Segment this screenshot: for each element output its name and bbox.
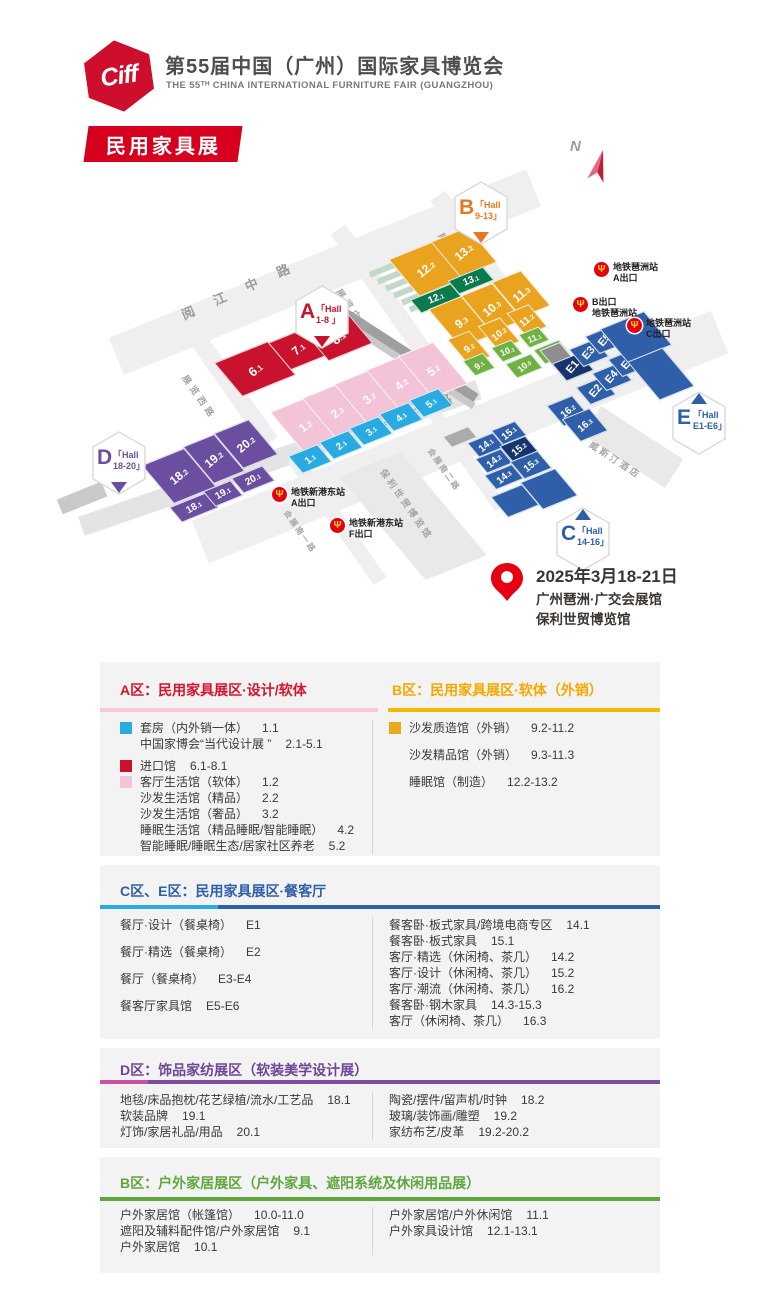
section-columns: 地毯/床品抱枕/花艺绿植/流水/工艺品18.1软装品牌19.1灯饰/家居礼品/用…: [100, 1092, 660, 1140]
legend-column: 户外家居馆/户外休闲馆11.1户外家具设计馆12.1-13.1: [372, 1207, 660, 1255]
legend-row: 客厅·潮流（休闲椅、茶几）16.2: [389, 981, 660, 997]
metro-logo-icon: Ψ: [573, 297, 588, 312]
legend-hall-number: E1: [246, 917, 261, 933]
legend-row: 沙发精品馆（外销）9.3-11.3: [389, 747, 660, 763]
page: Ciff 第55届中国（广州）国际家具博览会 THE 55ᵀᴴ CHINA IN…: [0, 0, 760, 1291]
legend-hall-number: 6.1-8.1: [190, 758, 227, 774]
legend-label: 客厅生活馆（软体）: [140, 774, 248, 790]
legend-row: 沙发质造馆（外销）9.2-11.2: [389, 720, 660, 736]
legend-row: 地毯/床品抱枕/花艺绿植/流水/工艺品18.1: [120, 1092, 372, 1108]
legend-hall-number: 14.3-15.3: [491, 997, 542, 1013]
north-label: N: [570, 138, 581, 155]
legend-label: 沙发生活馆（精品）: [140, 790, 248, 806]
hall-label: 15.3: [521, 456, 541, 475]
legend-hall-number: 15.1: [491, 933, 514, 949]
hall-label: 19.2: [202, 447, 226, 470]
hall-badge-A: A「Hall1-8 」: [293, 284, 351, 350]
metro-logo-icon: Ψ: [594, 262, 609, 277]
legend-hall-number: 12.2-13.2: [507, 774, 558, 790]
legend-label: 户外家居馆（帐篷馆）: [120, 1207, 240, 1223]
legend-hall-number: 3.2: [262, 806, 279, 822]
legend-row: 户外家居馆10.1: [120, 1239, 372, 1255]
legend-label: 沙发质造馆（外销）: [409, 720, 517, 736]
legend-hall-number: 18.1: [327, 1092, 350, 1108]
legend-column: 户外家居馆（帐篷馆）10.0-11.0遮阳及辅料配件馆/户外家居馆9.1户外家居…: [100, 1207, 372, 1255]
metro-exit-label: 地铁新港东站A出口: [291, 487, 345, 510]
legend-row: 户外家居馆（帐篷馆）10.0-11.0: [120, 1207, 372, 1223]
hall-label: 11.2: [517, 311, 536, 330]
hall-badge-letter: A: [300, 300, 315, 324]
venue-text: 2025年3月18-21日 广州琶洲·广交会展馆 保利世贸博览馆: [536, 562, 678, 631]
hall-badge-range: 「Hall14-16」: [577, 526, 609, 548]
legend-hall-number: 10.1: [194, 1239, 217, 1255]
legend-label: 户外家居馆: [120, 1239, 180, 1255]
legend-hall-number: 14.1: [566, 917, 589, 933]
legend-row: 餐厅（餐桌椅）E3-E4: [120, 971, 372, 987]
legend-row: 沙发生活馆（奢品）3.2: [120, 806, 372, 822]
legend-hall-number: 20.1: [237, 1124, 260, 1140]
hall-badge-E: E「HallE1-E6」: [670, 390, 728, 456]
legend-label: 玻璃/装饰画/雕塑: [389, 1108, 480, 1124]
legend-row: 套房（内外销一体）1.1: [120, 720, 372, 736]
legend-label: 餐客卧·钢木家具: [389, 997, 477, 1013]
legend-column: 陶瓷/摆件/留声机/时钟18.2玻璃/装饰画/雕塑19.2家纺布艺/皮革19.2…: [372, 1092, 660, 1140]
legend-sections: A区：民用家具展区·设计/软体B区：民用家具展区·软体（外销）套房（内外销一体）…: [100, 662, 660, 1282]
legend-row: 睡眠馆（制造）12.2-13.2: [389, 774, 660, 790]
north-arrow-icon: [580, 143, 619, 189]
hall-label: 10.0: [515, 357, 533, 374]
legend-hall-number: 9.1: [293, 1223, 310, 1239]
hall-label: 18.2: [167, 464, 191, 487]
legend-swatch: [120, 760, 132, 772]
hall-label: 5.1: [423, 395, 438, 410]
hall-badge-letter: C: [561, 522, 576, 546]
legend-hall-number: 2.2: [262, 790, 279, 806]
legend-row: 陶瓷/摆件/留声机/时钟18.2: [389, 1092, 660, 1108]
legend-label: 沙发生活馆（奢品）: [140, 806, 248, 822]
section-underline: [218, 905, 660, 909]
legend-column: 地毯/床品抱枕/花艺绿植/流水/工艺品18.1软装品牌19.1灯饰/家居礼品/用…: [100, 1092, 372, 1140]
metro-logo-icon: Ψ: [627, 318, 642, 333]
legend-label: 餐客卧·板式家具/跨境电商专区: [389, 917, 552, 933]
hall-label: 10.1: [498, 344, 515, 359]
legend-row: 客厅·精选（休闲椅、茶几）14.2: [389, 949, 660, 965]
legend-row: 遮阳及辅料配件馆/户外家居馆9.1: [120, 1223, 372, 1239]
legend-label: 客厅·精选（休闲椅、茶几）: [389, 949, 537, 965]
legend-panel-4: B区：户外家居展区（户外家具、遮阳系统及休闲用品展）户外家居馆（帐篷馆）10.0…: [100, 1157, 660, 1273]
legend-row: 智能睡眠/睡眠生态/居家社区养老5.2: [120, 838, 372, 854]
section-title: A区：民用家具展区·设计/软体: [120, 680, 307, 700]
legend-label: 餐客厅家具馆: [120, 998, 192, 1014]
legend-label: 客厅·设计（休闲椅、茶几）: [389, 965, 537, 981]
legend-hall-number: 19.2-20.2: [478, 1124, 529, 1140]
hall-label: 1.1: [302, 451, 317, 466]
legend-label: 客厅（休闲椅、茶几）: [389, 1013, 509, 1029]
hall-label: 1.2: [296, 416, 315, 435]
hall-label: 3.1: [363, 423, 378, 438]
legend-row: 餐客卧·板式家具/跨境电商专区14.1: [389, 917, 660, 933]
hall-badge-range: 「Hall18-20」: [113, 450, 145, 472]
legend-label: 遮阳及辅料配件馆/户外家居馆: [120, 1223, 279, 1239]
legend-hall-number: E2: [246, 944, 261, 960]
location-pin-icon: [490, 562, 524, 602]
legend-hall-number: 12.1-13.1: [487, 1223, 538, 1239]
legend-hall-number: E3-E4: [218, 971, 251, 987]
hall-label: 12.2: [414, 257, 438, 280]
hall-label: 11.1: [526, 330, 543, 345]
legend-label: 睡眠馆（制造）: [409, 774, 493, 790]
metro-exit: Ψ地铁琶洲站C出口: [627, 318, 691, 341]
venue-address-1: 广州琶洲·广交会展馆: [536, 590, 678, 610]
metro-exit-label: 地铁新港东站F出口: [349, 518, 403, 541]
legend-label: 餐厅·精选（餐桌椅）: [120, 944, 232, 960]
legend-hall-number: 1.1: [262, 720, 279, 736]
hall-badge-B: B「Hall9-13」: [452, 180, 510, 246]
legend-row: 户外家居馆/户外休闲馆11.1: [389, 1207, 660, 1223]
legend-panel-3: D区：饰品家纺展区（软装美学设计展）地毯/床品抱枕/花艺绿植/流水/工艺品18.…: [100, 1048, 660, 1148]
legend-label: 中国家博会“当代设计展 ”: [140, 736, 271, 752]
legend-label: 家纺布艺/皮革: [389, 1124, 464, 1140]
legend-row: 餐厅·设计（餐桌椅）E1: [120, 917, 372, 933]
venue-info: 2025年3月18-21日 广州琶洲·广交会展馆 保利世贸博览馆: [490, 562, 678, 631]
legend-row: 沙发生活馆（精品）2.2: [120, 790, 372, 806]
hall-label: 20.1: [243, 471, 263, 489]
section-title: B区：户外家居展区（户外家具、遮阳系统及休闲用品展）: [120, 1173, 480, 1193]
legend-hall-number: 10.0-11.0: [254, 1207, 304, 1223]
venue-map: N 2025年3月18-21日 广州琶洲·广交会展馆 保利世贸博览馆 阅 江 中…: [0, 0, 760, 660]
hall-label: 14.3: [494, 468, 514, 487]
section-title: D区：饰品家纺展区（软装美学设计展）: [120, 1060, 368, 1080]
legend-row: 玻璃/装饰画/雕塑19.2: [389, 1108, 660, 1124]
metro-exit: Ψ地铁新港东站F出口: [330, 518, 403, 541]
legend-row: 餐厅·精选（餐桌椅）E2: [120, 944, 372, 960]
legend-label: 户外家具设计馆: [389, 1223, 473, 1239]
section-columns: 餐厅·设计（餐桌椅）E1餐厅·精选（餐桌椅）E2餐厅（餐桌椅）E3-E4餐客厅家…: [100, 917, 660, 1029]
hall-label: 4.2: [392, 374, 411, 393]
metro-exit-label: 地铁琶洲站C出口: [646, 318, 691, 341]
legend-row: 灯饰/家居礼品/用品20.1: [120, 1124, 372, 1140]
legend-label: 智能睡眠/睡眠生态/居家社区养老: [140, 838, 315, 854]
metro-exit-label: 地铁琶洲站A出口: [613, 262, 658, 285]
legend-swatch: [120, 722, 132, 734]
legend-column: 套房（内外销一体）1.1中国家博会“当代设计展 ”2.1-5.1进口馆6.1-8…: [100, 720, 372, 854]
metro-logo-icon: Ψ: [330, 518, 345, 533]
legend-hall-number: E5-E6: [206, 998, 239, 1014]
section-underline: [100, 1197, 660, 1201]
legend-label: 睡眠生活馆（精品睡眠/智能睡眠）: [140, 822, 323, 838]
section-columns: 户外家居馆（帐篷馆）10.0-11.0遮阳及辅料配件馆/户外家居馆9.1户外家居…: [100, 1207, 660, 1255]
hall-label: 6.1: [245, 359, 265, 379]
legend-label: 软装品牌: [120, 1108, 168, 1124]
hall-label: 10.3: [480, 296, 504, 319]
legend-label: 地毯/床品抱枕/花艺绿植/流水/工艺品: [120, 1092, 313, 1108]
legend-hall-number: 16.3: [523, 1013, 546, 1029]
legend-row: 客厅·设计（休闲椅、茶几）15.2: [389, 965, 660, 981]
hall-badge-range: 「Hall1-8 」: [316, 304, 342, 326]
legend-row: 餐客卧·板式家具15.1: [389, 933, 660, 949]
legend-label: 餐厅·设计（餐桌椅）: [120, 917, 232, 933]
legend-panel-1: A区：民用家具展区·设计/软体B区：民用家具展区·软体（外销）套房（内外销一体）…: [100, 662, 660, 856]
legend-swatch: [120, 776, 132, 788]
legend-hall-number: 1.2: [262, 774, 279, 790]
metro-exit: Ψ地铁琶洲站A出口: [594, 262, 658, 285]
legend-label: 餐厅（餐桌椅）: [120, 971, 204, 987]
legend-row: 户外家具设计馆12.1-13.1: [389, 1223, 660, 1239]
venue-date: 2025年3月18-21日: [536, 562, 678, 587]
hall-badge-D: D「Hall18-20」: [90, 430, 148, 496]
legend-column: 沙发质造馆（外销）9.2-11.2沙发精品馆（外销）9.3-11.3睡眠馆（制造…: [372, 720, 660, 854]
legend-hall-number: 9.2-11.2: [531, 720, 574, 736]
section-underline: [388, 708, 660, 712]
hall-label: 2.2: [328, 402, 347, 421]
legend-label: 户外家居馆/户外休闲馆: [389, 1207, 512, 1223]
legend-hall-number: 15.2: [551, 965, 574, 981]
metro-exit-label: B出口地铁琶洲站: [592, 297, 637, 320]
legend-label: 灯饰/家居礼品/用品: [120, 1124, 223, 1140]
hall-label: 16.3: [575, 416, 595, 435]
legend-hall-number: 4.2: [337, 822, 354, 838]
legend-hall-number: 18.2: [521, 1092, 544, 1108]
hall-label: 13.1: [461, 272, 480, 288]
metro-logo-icon: Ψ: [272, 487, 287, 502]
road-label: 展览西路: [179, 372, 219, 422]
hall-label: 20.2: [234, 432, 258, 455]
legend-hall-number: 19.2: [494, 1108, 517, 1124]
hall-badge-letter: E: [677, 406, 691, 430]
hall-badge-letter: D: [97, 446, 112, 470]
legend-panel-2: C区、E区：民用家具展区·餐客厅餐厅·设计（餐桌椅）E1餐厅·精选（餐桌椅）E2…: [100, 865, 660, 1039]
legend-swatch: [389, 722, 401, 734]
hall-badge-letter: B: [459, 196, 474, 220]
hall-label: 5.2: [424, 360, 443, 379]
legend-row: 软装品牌19.1: [120, 1108, 372, 1124]
legend-row: 客厅生活馆（软体）1.2: [120, 774, 372, 790]
hall-label: 11.3: [509, 283, 532, 306]
hall-badge-range: 「Hall9-13」: [475, 200, 502, 222]
legend-column: 餐客卧·板式家具/跨境电商专区14.1餐客卧·板式家具15.1客厅·精选（休闲椅…: [372, 917, 660, 1029]
legend-label: 沙发精品馆（外销）: [409, 747, 517, 763]
legend-label: 进口馆: [140, 758, 176, 774]
legend-hall-number: 2.1-5.1: [285, 736, 322, 752]
legend-label: 陶瓷/摆件/留声机/时钟: [389, 1092, 507, 1108]
hall-label: 9.1: [472, 358, 486, 372]
section-underline: [148, 1080, 660, 1084]
legend-label: 套房（内外销一体）: [140, 720, 248, 736]
legend-row: 客厅（休闲椅、茶几）16.3: [389, 1013, 660, 1029]
legend-column: 餐厅·设计（餐桌椅）E1餐厅·精选（餐桌椅）E2餐厅（餐桌椅）E3-E4餐客厅家…: [100, 917, 372, 1029]
hall-badge-range: 「HallE1-E6」: [693, 410, 727, 432]
hall-label: 4.1: [393, 409, 408, 424]
metro-exit: Ψ地铁新港东站A出口: [272, 487, 345, 510]
hall-label: 3.2: [360, 388, 379, 407]
legend-hall-number: 16.2: [551, 981, 574, 997]
legend-row: 进口馆6.1-8.1: [120, 758, 372, 774]
legend-row: 餐客卧·钢木家具14.3-15.3: [389, 997, 660, 1013]
section-title: C区、E区：民用家具展区·餐客厅: [120, 881, 326, 901]
hall-label: 18.1: [184, 499, 204, 517]
section-underline: [100, 708, 378, 712]
metro-exit: ΨB出口地铁琶洲站: [573, 297, 637, 320]
legend-row: 睡眠生活馆（精品睡眠/智能睡眠）4.2: [120, 822, 372, 838]
section-columns: 套房（内外销一体）1.1中国家博会“当代设计展 ”2.1-5.1进口馆6.1-8…: [100, 720, 660, 854]
legend-label: 餐客卧·板式家具: [389, 933, 477, 949]
section-title: B区：民用家具展区·软体（外销）: [392, 680, 603, 700]
legend-row: 中国家博会“当代设计展 ”2.1-5.1: [120, 736, 372, 752]
hall-label: 2.1: [333, 437, 348, 452]
legend-hall-number: 11.1: [526, 1207, 548, 1223]
section-underline: [100, 1080, 148, 1084]
hall-label: 9.3: [452, 312, 471, 331]
north-indicator: N: [570, 138, 630, 198]
hall-label: 9.2: [461, 340, 476, 355]
legend-row: 餐客厅家具馆E5-E6: [120, 998, 372, 1014]
legend-hall-number: 5.2: [329, 838, 346, 854]
legend-label: 客厅·潮流（休闲椅、茶几）: [389, 981, 537, 997]
venue-address-2: 保利世贸博览馆: [536, 610, 678, 630]
legend-hall-number: 9.3-11.3: [531, 747, 574, 763]
hall-label: 19.1: [213, 485, 233, 503]
section-underline: [100, 905, 218, 909]
legend-hall-number: 14.2: [551, 949, 574, 965]
legend-row: 家纺布艺/皮革19.2-20.2: [389, 1124, 660, 1140]
legend-hall-number: 19.1: [182, 1108, 205, 1124]
